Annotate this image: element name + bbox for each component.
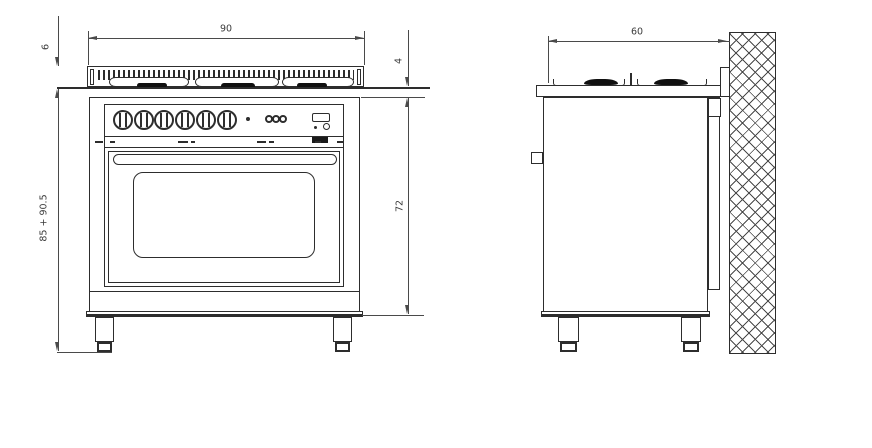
dim-width-label: 90: [220, 24, 232, 35]
front-left-foot: [95, 317, 114, 342]
side-burner-right-cap: [654, 79, 688, 85]
dim-total-height-ext-bottom: [57, 352, 112, 353]
door-top-line: [104, 147, 344, 148]
dim-body-height-arrow-top: [405, 98, 409, 107]
oven-door-handle[interactable]: [113, 154, 337, 165]
vent-dash: [315, 141, 321, 143]
dim-total-height-arrow-top: [55, 89, 59, 98]
dim-body-bottom-ext: [362, 315, 424, 316]
front-cooktop-left-post: [90, 69, 94, 85]
dim-body-height-arrow-bottom: [405, 305, 409, 314]
dim-width-line: [88, 38, 364, 39]
dim-surface-drop-arrow: [405, 77, 409, 86]
base-line: [89, 291, 360, 292]
dim-depth-label: 60: [631, 27, 643, 38]
front-right-foot-tip: [335, 342, 350, 352]
side-burner-left-cap: [584, 79, 618, 85]
panel-bottom-line: [104, 136, 344, 137]
control-knob-2[interactable]: [134, 110, 154, 130]
dim-total-height-line: [58, 89, 59, 351]
dim-total-height-label: 85 + 90.5: [39, 194, 50, 241]
vent-dash: [257, 141, 266, 143]
side-rear-connection-box: [708, 98, 721, 117]
vent-dash: [191, 141, 195, 143]
front-right-foot: [333, 317, 352, 342]
dim-depth-arrow-left: [548, 39, 557, 43]
dim-body-height-line: [408, 98, 409, 314]
front-cooktop-right-post: [357, 69, 361, 85]
control-knob-3[interactable]: [154, 110, 174, 130]
dim-hob-height-label: 6: [41, 44, 52, 50]
vent-dash: [95, 141, 103, 143]
vent-dash: [178, 141, 188, 143]
worktop-surface-line: [57, 87, 430, 89]
vent-dash: [337, 141, 344, 143]
vent-dash: [269, 141, 274, 143]
dim-body-top-ext: [361, 97, 425, 98]
oven-door-window: [133, 172, 315, 258]
control-knob-4[interactable]: [175, 110, 195, 130]
side-front-foot: [558, 317, 579, 342]
control-knob-6[interactable]: [217, 110, 237, 130]
control-knob-5[interactable]: [196, 110, 216, 130]
front-left-foot-tip: [97, 342, 112, 352]
panel-button-3[interactable]: [279, 115, 287, 123]
vent-dash: [110, 141, 115, 143]
display-dot: [314, 126, 317, 129]
control-knob-1[interactable]: [113, 110, 133, 130]
wall-section: [729, 32, 776, 354]
timer-display: [312, 113, 330, 122]
dim-width-ext-right: [364, 31, 365, 65]
dim-body-height-label: 72: [395, 200, 406, 212]
dim-depth-arrow-right: [718, 39, 727, 43]
installation-drawing: 90 6 85 + 90.5 4 72: [0, 0, 872, 448]
dim-width-arrow-left: [88, 36, 97, 40]
display-knob[interactable]: [323, 123, 330, 130]
dim-depth-ext-left: [548, 36, 549, 83]
side-body: [543, 97, 708, 315]
side-rear-foot: [681, 317, 701, 342]
side-rear-foot-tip: [683, 342, 699, 352]
side-rear-strip: [708, 97, 720, 290]
side-door-handle[interactable]: [531, 152, 543, 164]
dim-surface-drop-label: 4: [394, 58, 405, 64]
dim-total-height-arrow-bottom: [55, 342, 59, 351]
front-bottom-bar: [86, 311, 363, 317]
dim-hob-height-arrow: [55, 57, 59, 66]
dim-width-arrow-right: [355, 36, 364, 40]
igniter-dot: [246, 117, 250, 121]
side-center-pin: [630, 73, 632, 85]
side-cooktop-band: [536, 85, 722, 97]
side-front-foot-tip: [560, 342, 577, 352]
dim-depth-line: [548, 41, 730, 42]
